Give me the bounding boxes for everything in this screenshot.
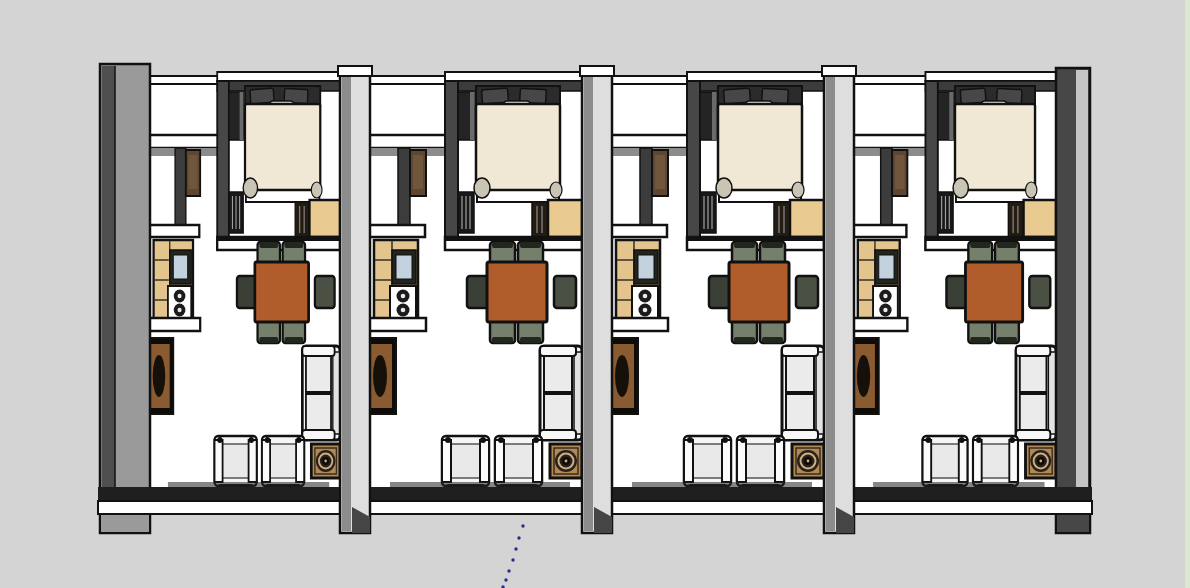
right-wall-foot [1056,514,1090,533]
apartment-unit-2[interactable] [350,72,582,490]
wall-edge-light [1076,70,1088,531]
exterior-wall-left [100,64,150,533]
wall-top-cap [338,66,372,76]
divider-wall-3 [822,66,856,533]
left-wall-foot [100,514,150,533]
wall-top-cap [580,66,614,76]
wall-stripe [342,74,351,531]
apartment-unit-3[interactable] [592,72,824,490]
exterior-wall-right [1056,68,1090,533]
wall-stripe [826,74,835,531]
apartment-unit-1[interactable] [132,72,340,490]
wall-edge-dark [102,66,115,531]
wall-top-cap [822,66,856,76]
apartment-unit-4[interactable] [835,72,1056,490]
divider-wall-1 [338,66,372,533]
wall-stripe [584,74,593,531]
divider-wall-2 [580,66,614,533]
floor-plan-canvas[interactable] [0,0,1190,588]
viewport-edge-strip [1185,0,1190,588]
